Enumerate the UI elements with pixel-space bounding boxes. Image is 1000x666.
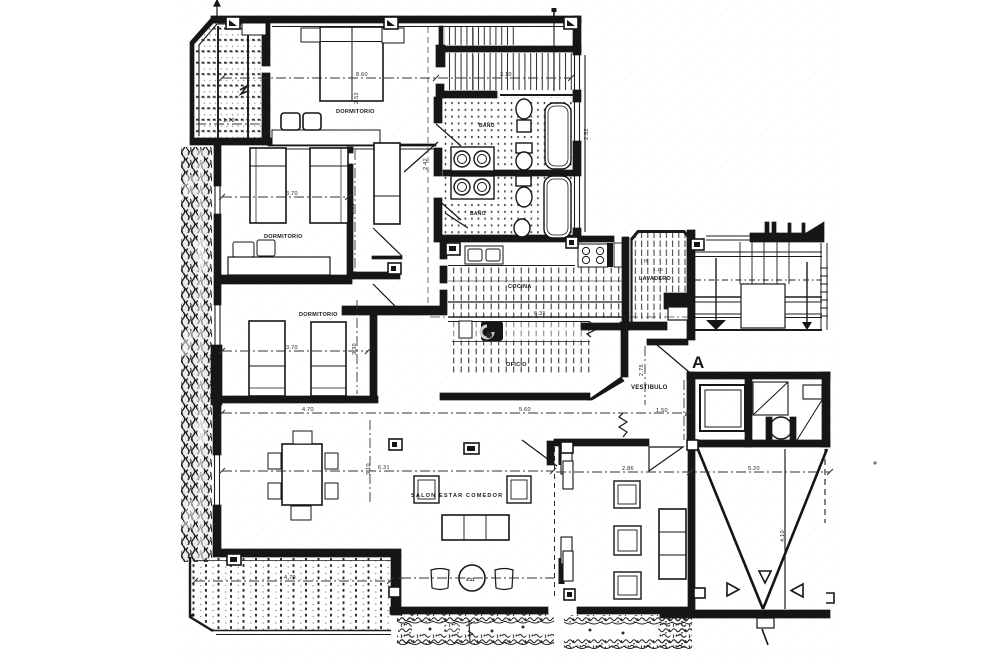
svg-text:1.70: 1.70 <box>413 308 425 314</box>
svg-text:3.11: 3.11 <box>466 577 475 582</box>
svg-text:2.86: 2.86 <box>622 466 634 472</box>
svg-text:LAVADERO: LAVADERO <box>639 276 672 282</box>
svg-text:1.50: 1.50 <box>656 408 668 414</box>
svg-text:COCINA: COCINA <box>508 284 532 290</box>
svg-text:3.70: 3.70 <box>286 191 298 197</box>
svg-text:1.70: 1.70 <box>223 118 235 124</box>
svg-text:1.10: 1.10 <box>653 267 663 272</box>
svg-text:2.52: 2.52 <box>584 128 590 140</box>
svg-text:DORMITORIO: DORMITORIO <box>299 312 338 318</box>
svg-text:OFICIO: OFICIO <box>506 362 527 368</box>
svg-text:6.31: 6.31 <box>378 465 390 471</box>
svg-text:3.10: 3.10 <box>500 72 512 78</box>
svg-text:VESTIBULO: VESTIBULO <box>631 385 668 391</box>
svg-text:3.30: 3.30 <box>352 343 358 355</box>
svg-text:DORMITORIO: DORMITORIO <box>264 234 303 240</box>
svg-text:8.60: 8.60 <box>356 72 368 78</box>
svg-text:2.52: 2.52 <box>354 92 360 104</box>
svg-text:5.60: 5.60 <box>519 407 531 413</box>
svg-text:3.10: 3.10 <box>366 463 372 475</box>
svg-text:4.70: 4.70 <box>284 575 296 581</box>
svg-text:2.42: 2.42 <box>423 158 429 170</box>
svg-text:BAÑO: BAÑO <box>470 210 486 217</box>
svg-text:5.20: 5.20 <box>748 466 760 472</box>
svg-text:4.70: 4.70 <box>302 407 314 413</box>
svg-text:DORMITORIO: DORMITORIO <box>336 109 375 115</box>
svg-text:3.35: 3.35 <box>350 203 356 215</box>
svg-text:H: H <box>644 259 648 265</box>
svg-text:A: A <box>692 353 705 372</box>
svg-text:4.10: 4.10 <box>780 530 786 542</box>
svg-text:BAÑO: BAÑO <box>479 122 495 129</box>
svg-text:3.70: 3.70 <box>286 345 298 351</box>
svg-text:SALON ESTAR COMEDOR: SALON ESTAR COMEDOR <box>411 493 503 499</box>
svg-text:2.75: 2.75 <box>639 364 645 376</box>
svg-text:6.31: 6.31 <box>534 311 546 317</box>
